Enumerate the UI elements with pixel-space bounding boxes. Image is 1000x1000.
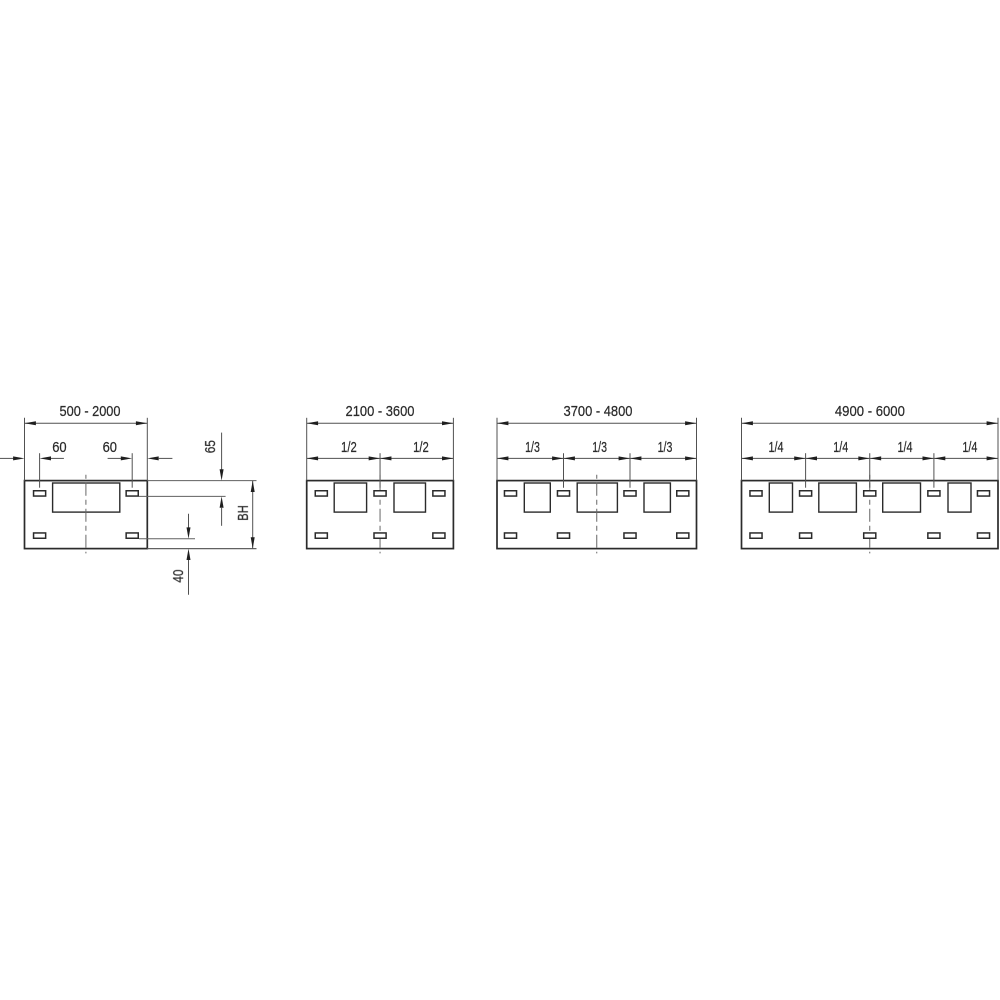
svg-text:3700 - 4800: 3700 - 4800 xyxy=(564,403,633,420)
svg-text:1/3: 1/3 xyxy=(658,439,673,456)
svg-text:40: 40 xyxy=(170,570,187,583)
svg-text:1/3: 1/3 xyxy=(592,439,607,456)
svg-text:2100 - 3600: 2100 - 3600 xyxy=(346,403,415,420)
svg-text:BH: BH xyxy=(235,505,252,521)
svg-text:1/4: 1/4 xyxy=(833,439,848,456)
svg-text:4900 - 6000: 4900 - 6000 xyxy=(835,403,905,420)
svg-text:65: 65 xyxy=(202,440,219,453)
svg-text:1/3: 1/3 xyxy=(525,439,540,456)
svg-text:1/4: 1/4 xyxy=(769,439,784,456)
svg-text:60: 60 xyxy=(103,439,117,456)
svg-text:1/2: 1/2 xyxy=(413,439,429,456)
svg-text:1/4: 1/4 xyxy=(962,439,977,456)
svg-text:500 - 2000: 500 - 2000 xyxy=(60,403,121,420)
svg-text:1/4: 1/4 xyxy=(898,439,913,456)
svg-text:1/2: 1/2 xyxy=(341,439,357,456)
svg-text:60: 60 xyxy=(52,439,66,456)
